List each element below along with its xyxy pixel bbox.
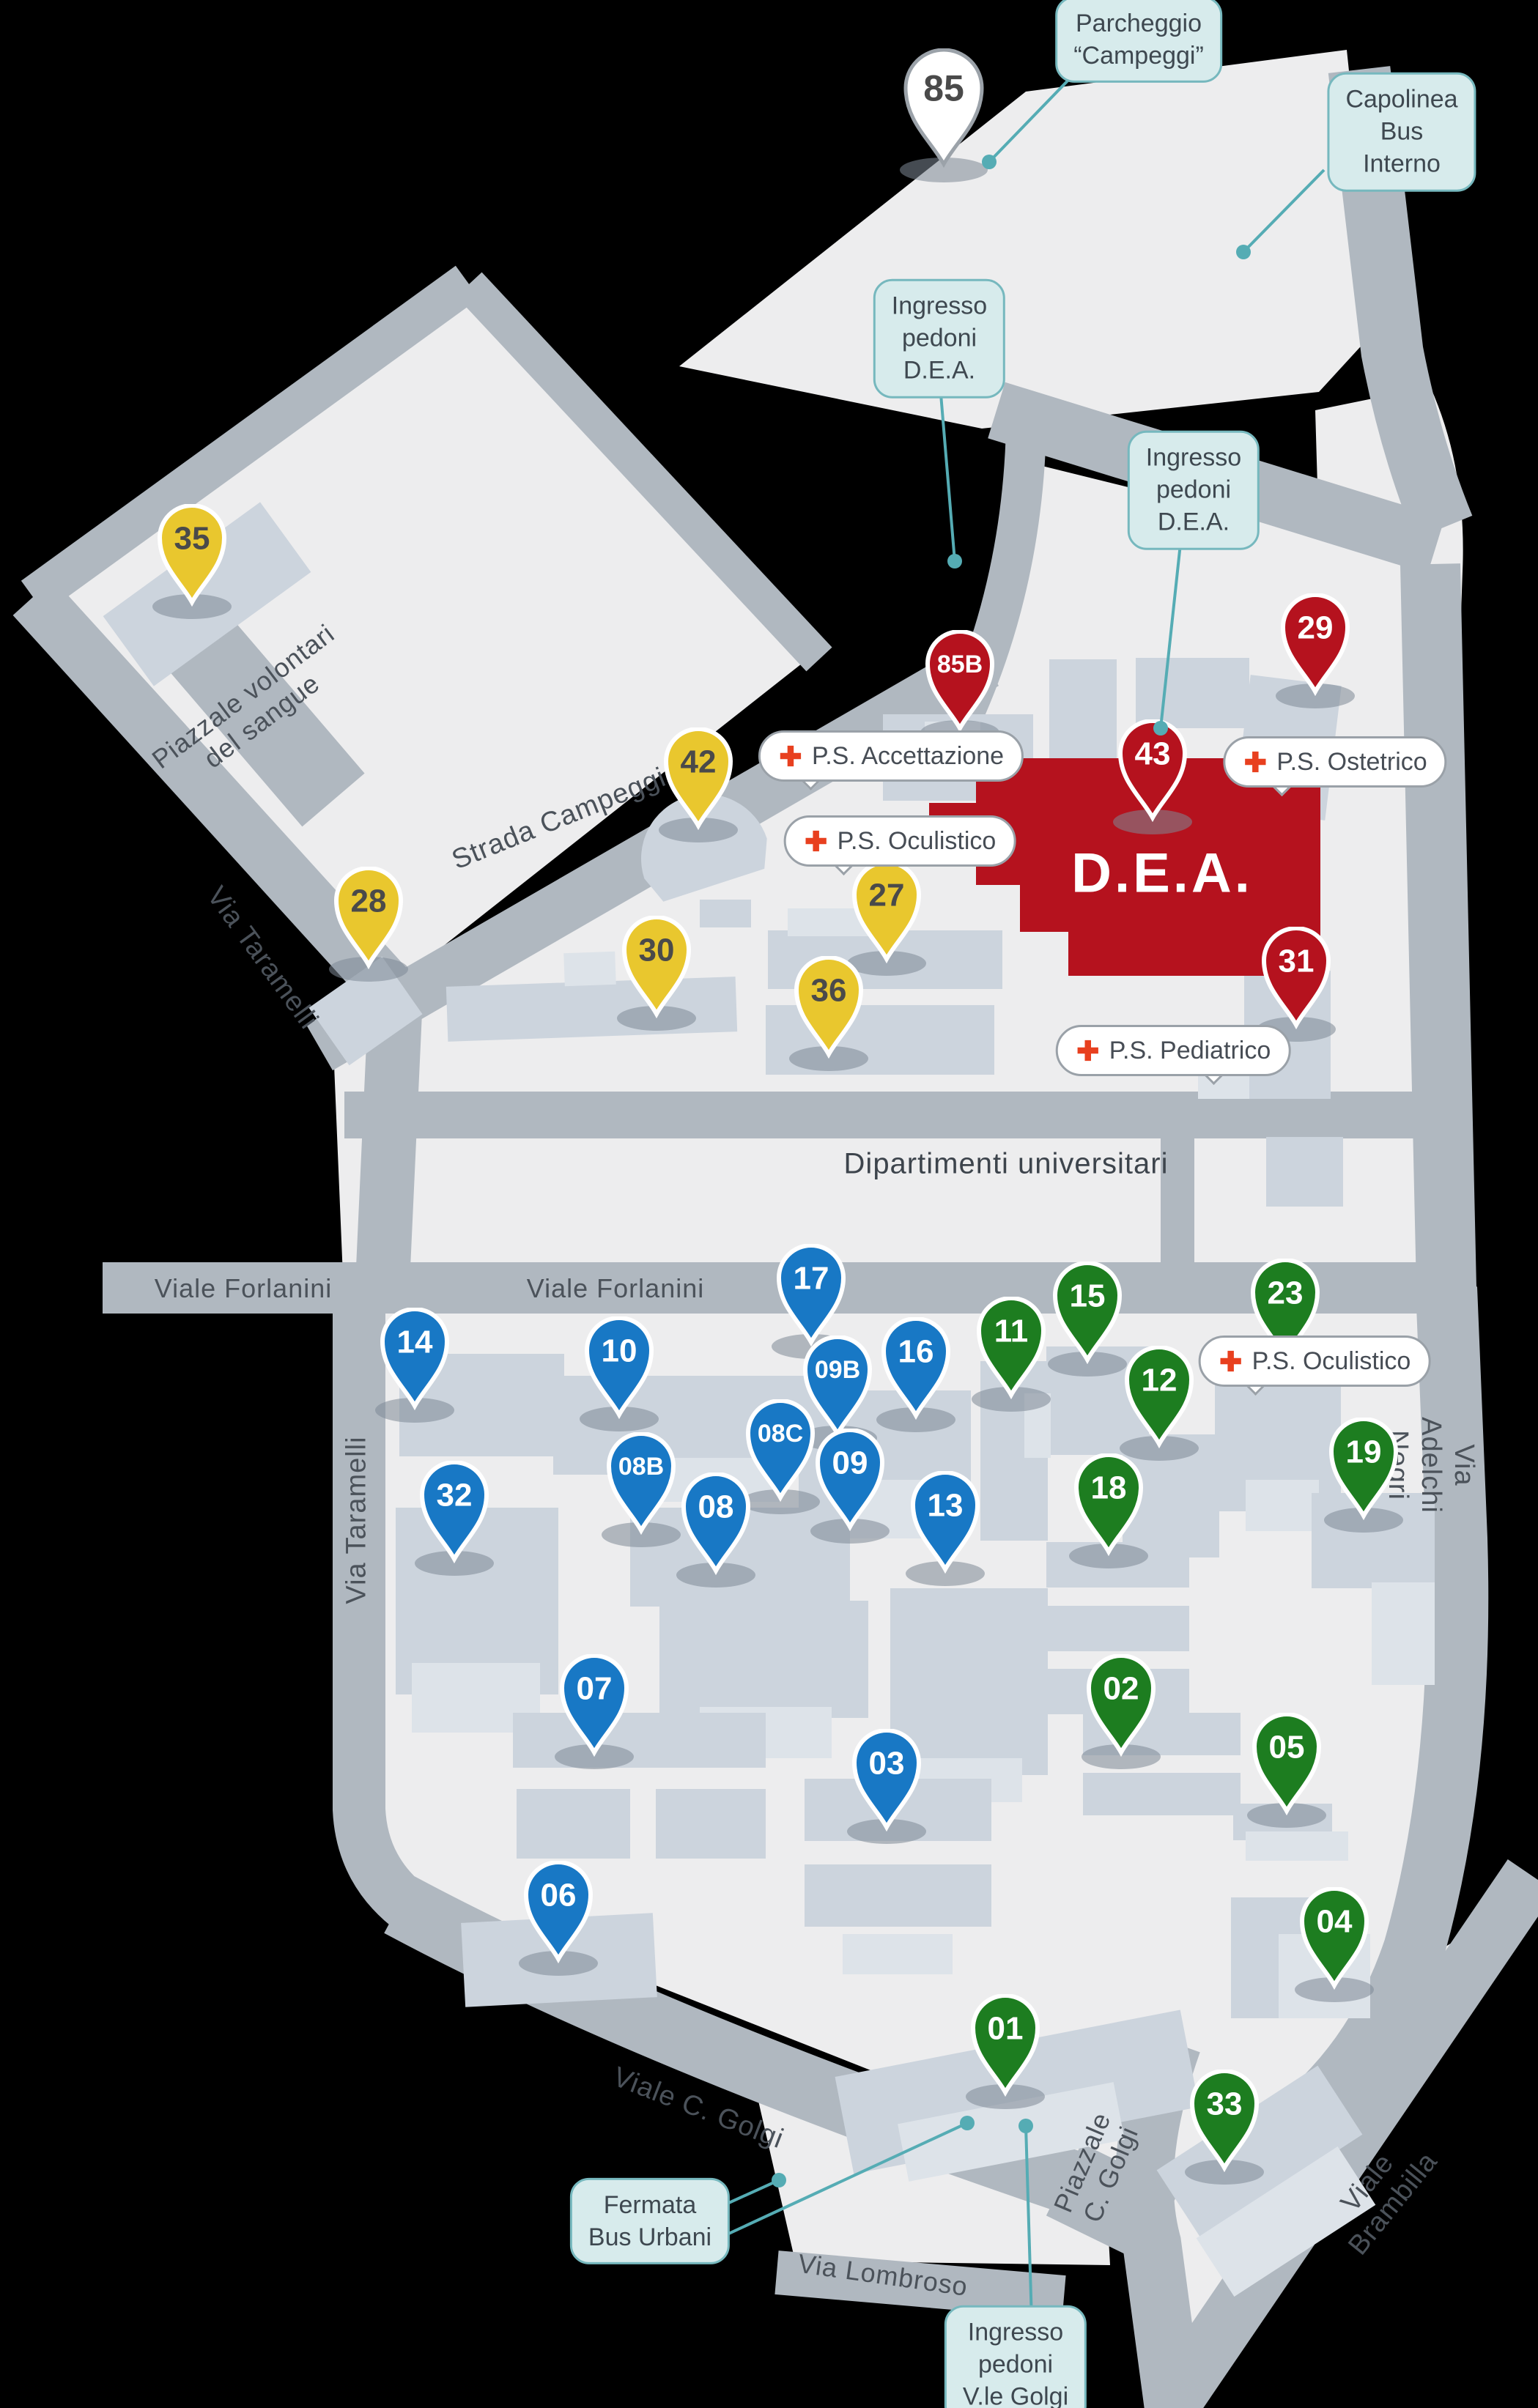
- callout-ingresso-pedoni-dea-2: Ingresso pedoni D.E.A.: [1128, 431, 1260, 550]
- info-callouts-layer: Parcheggio “Campeggi”Capolinea Bus Inter…: [0, 0, 1538, 2408]
- callout-parcheggio-campeggi: Parcheggio “Campeggi”: [1055, 0, 1222, 83]
- callout-ingresso-pedoni-vle-golgi: Ingresso pedoni V.le Golgi: [944, 2305, 1087, 2408]
- callout-fermata-bus-urbani: Fermata Bus Urbani: [570, 2178, 730, 2264]
- callout-ingresso-pedoni-dea-1: Ingresso pedoni D.E.A.: [873, 279, 1005, 399]
- hospital-campus-map: Piazzale volontari del sangueStrada Camp…: [0, 0, 1538, 2408]
- callout-capolinea-bus-interno: Capolinea Bus Interno: [1327, 73, 1476, 192]
